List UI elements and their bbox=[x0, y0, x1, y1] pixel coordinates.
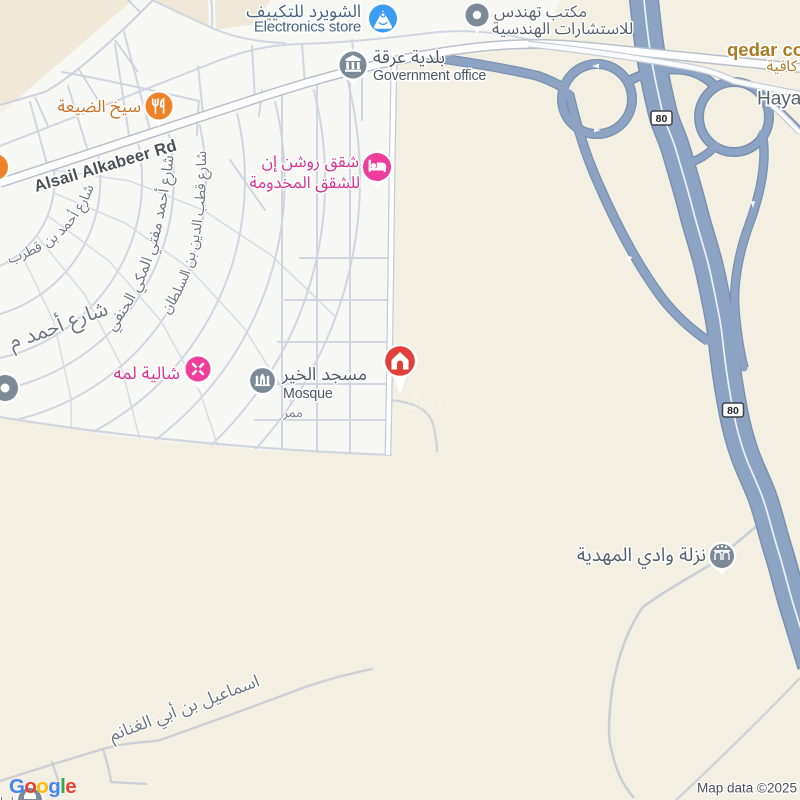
svg-text:80: 80 bbox=[727, 405, 739, 417]
svg-text:Haya: Haya bbox=[757, 89, 800, 110]
svg-text:Google: Google bbox=[9, 775, 76, 798]
svg-text:Electronics store: Electronics store bbox=[254, 19, 361, 36]
svg-text:80: 80 bbox=[656, 113, 668, 125]
svg-text:Government office: Government office bbox=[373, 68, 486, 84]
svg-text:qedar cof: qedar cof bbox=[727, 39, 800, 60]
svg-text:Mosque: Mosque bbox=[283, 386, 333, 402]
svg-text:Map data ©2025: Map data ©2025 bbox=[697, 781, 797, 796]
